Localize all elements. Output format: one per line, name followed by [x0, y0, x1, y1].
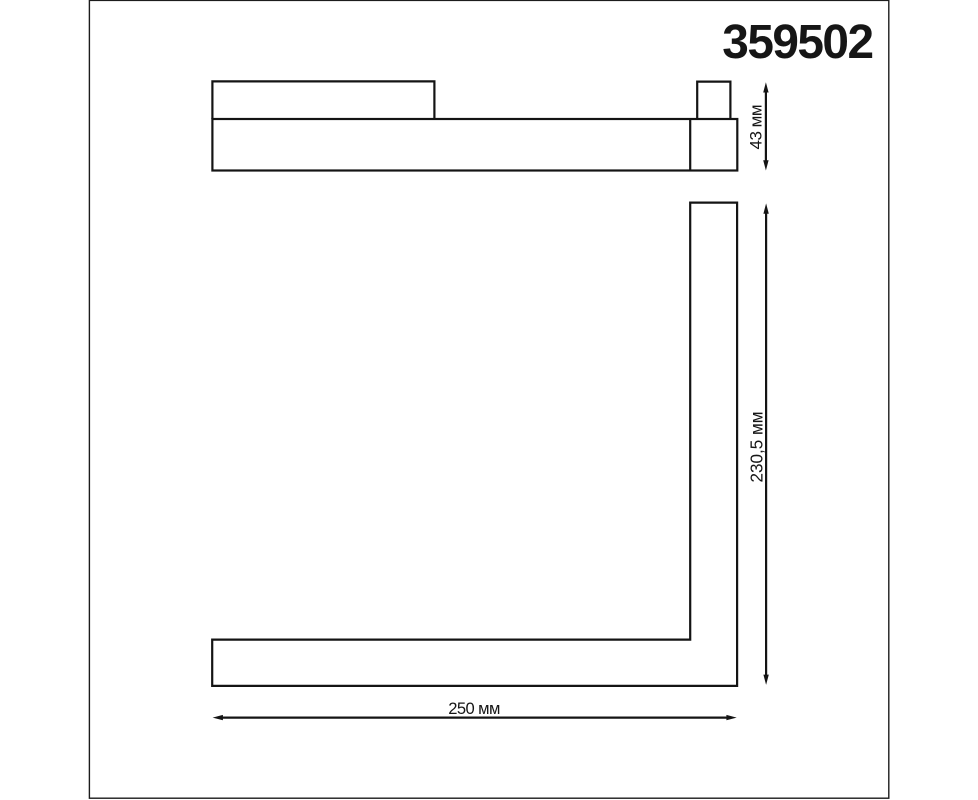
svg-text:250 мм: 250 мм: [448, 699, 500, 718]
svg-text:230,5 мм: 230,5 мм: [747, 411, 766, 482]
svg-text:43 мм: 43 мм: [747, 105, 766, 150]
svg-text:359502: 359502: [722, 16, 872, 69]
